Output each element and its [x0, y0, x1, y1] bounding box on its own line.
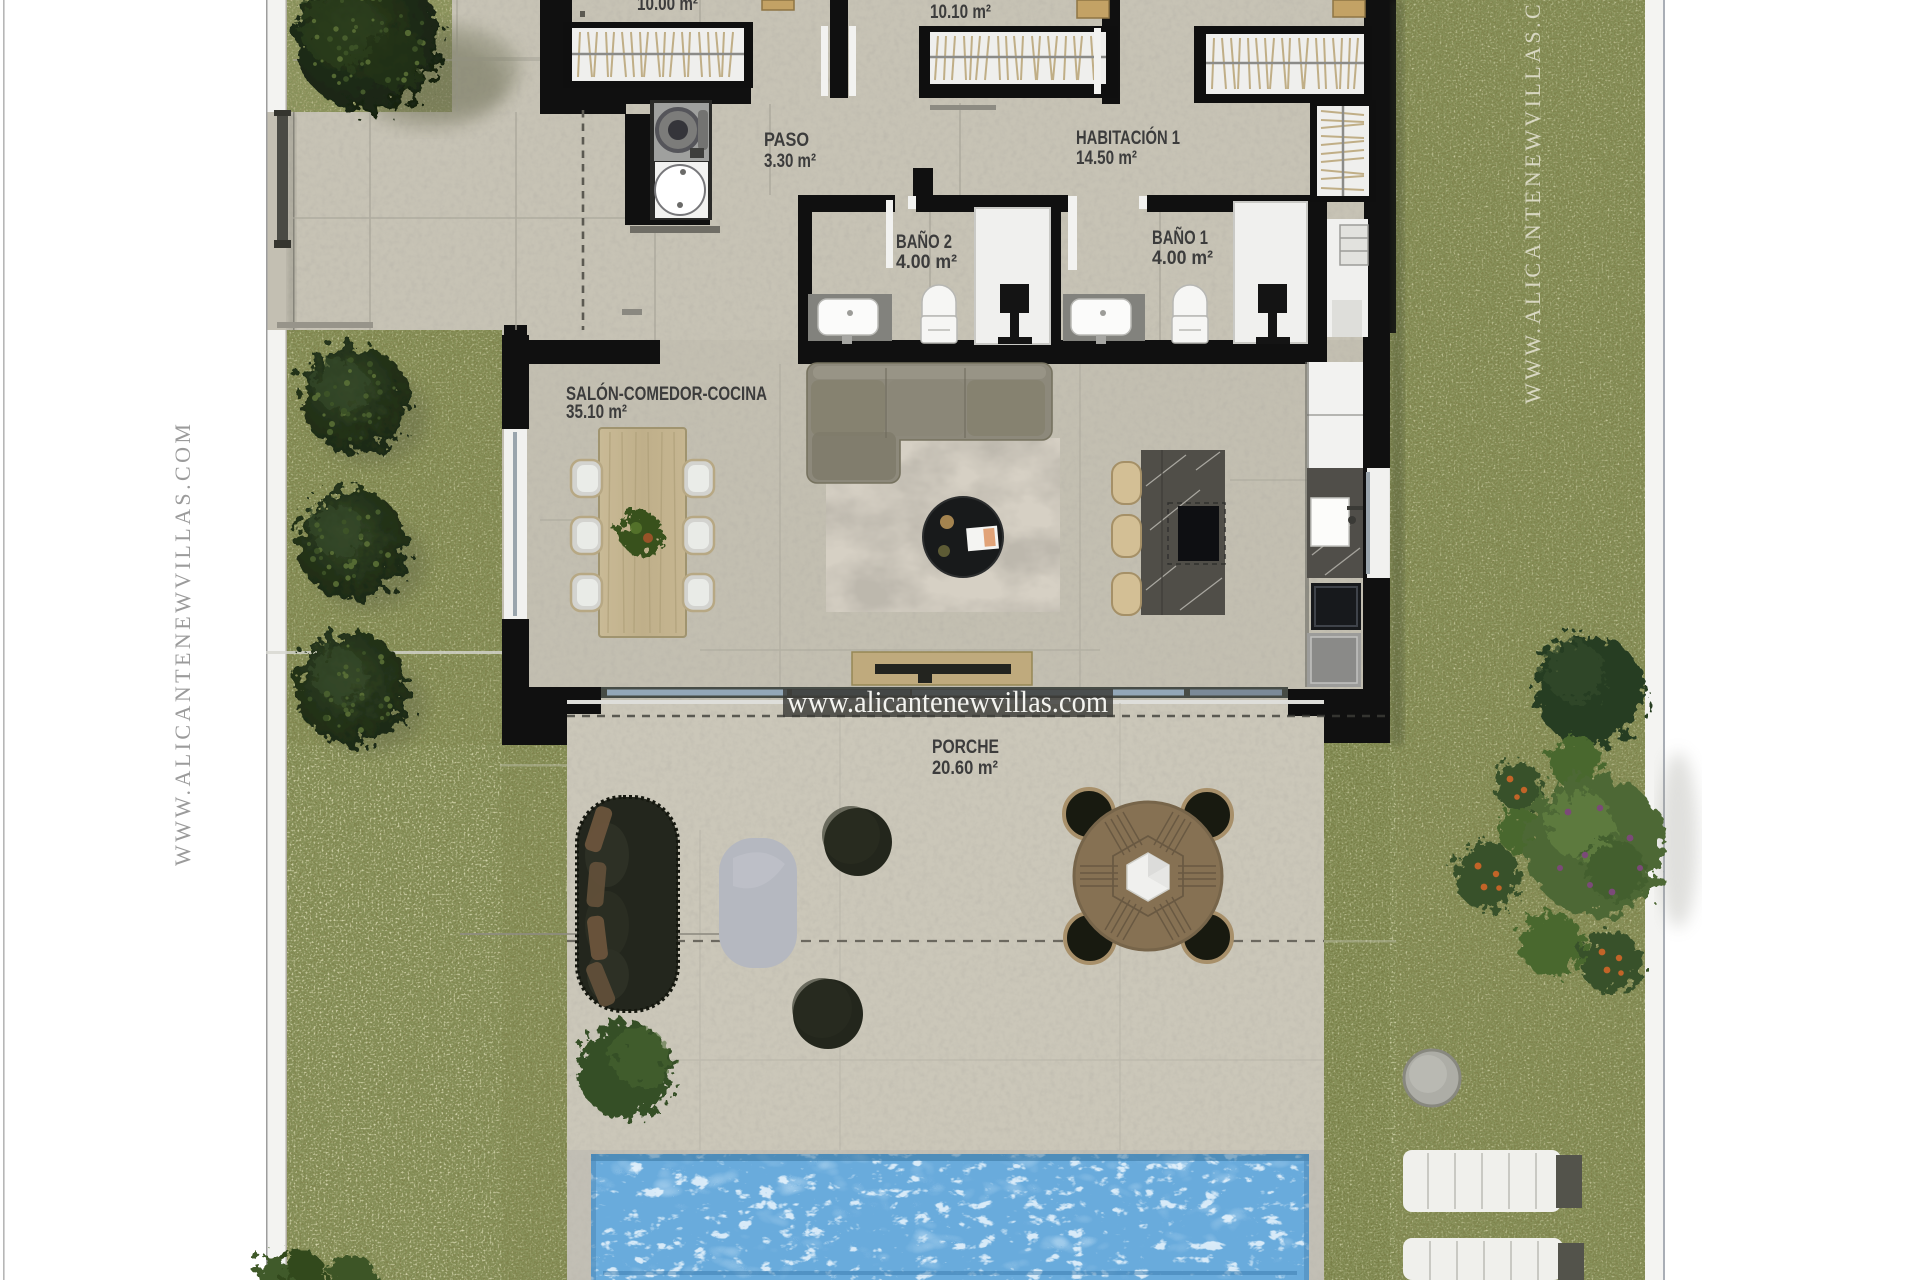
svg-text:3.30 m²: 3.30 m²	[764, 151, 816, 172]
svg-text:20.60 m²: 20.60 m²	[932, 758, 998, 779]
svg-text:10.10 m²: 10.10 m²	[930, 2, 991, 23]
svg-text:4.00 m²: 4.00 m²	[896, 252, 957, 273]
svg-text:www.alicantenewvillas.com: www.alicantenewvillas.com	[787, 684, 1108, 719]
svg-text:PASO: PASO	[764, 130, 809, 151]
svg-text:BAÑO 2: BAÑO 2	[896, 231, 952, 253]
svg-text:BAÑO 1: BAÑO 1	[1152, 227, 1208, 249]
svg-text:WWW.ALICANTENEWVILLAS.COM: WWW.ALICANTENEWVILLAS.COM	[170, 420, 195, 866]
svg-text:HABITACIÓN 1: HABITACIÓN 1	[1076, 127, 1180, 149]
svg-text:WWW.ALICANTENEWVILLAS.COM: WWW.ALICANTENEWVILLAS.COM	[1520, 0, 1545, 404]
svg-text:4.00 m²: 4.00 m²	[1152, 248, 1213, 269]
svg-text:PORCHE: PORCHE	[932, 737, 999, 758]
svg-text:35.10 m²: 35.10 m²	[566, 402, 627, 423]
svg-text:10.00 m²: 10.00 m²	[637, 0, 698, 15]
svg-text:14.50 m²: 14.50 m²	[1076, 148, 1137, 169]
